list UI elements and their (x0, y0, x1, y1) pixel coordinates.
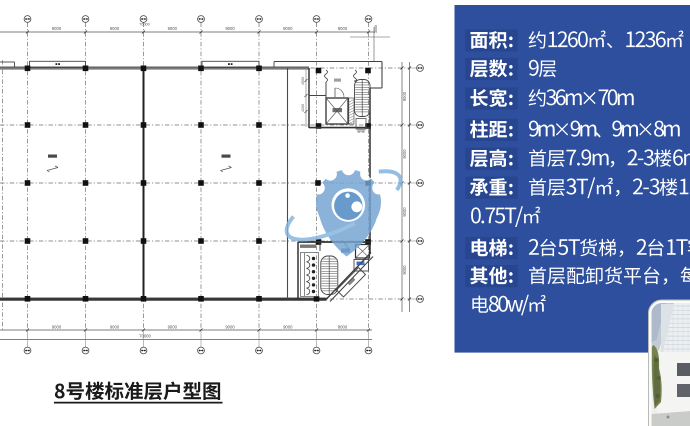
svg-text:9000: 9000 (283, 324, 293, 329)
svg-text:9000: 9000 (225, 26, 235, 31)
svg-text:4500: 4500 (301, 77, 305, 85)
svg-text:9000: 9000 (402, 149, 407, 159)
svg-text:9000: 9000 (52, 324, 62, 329)
svg-text:9000: 9000 (110, 26, 120, 31)
svg-text:4200: 4200 (301, 104, 305, 112)
svg-text:9000: 9000 (52, 26, 62, 31)
svg-text:9000: 9000 (283, 26, 293, 31)
svg-text:9000: 9000 (402, 91, 407, 101)
svg-text:9000: 9000 (168, 324, 178, 329)
svg-text:9000: 9000 (168, 26, 178, 31)
svg-text:3000: 3000 (374, 25, 378, 33)
svg-text:9000: 9000 (402, 207, 407, 217)
svg-text:8000: 8000 (338, 26, 348, 31)
svg-text:9000: 9000 (402, 265, 407, 275)
svg-text:9000: 9000 (110, 324, 120, 329)
svg-text:9000: 9000 (225, 324, 235, 329)
svg-text:70000: 70000 (139, 334, 151, 339)
svg-text:8000: 8000 (338, 324, 348, 329)
svg-text:70000: 70000 (139, 22, 150, 26)
